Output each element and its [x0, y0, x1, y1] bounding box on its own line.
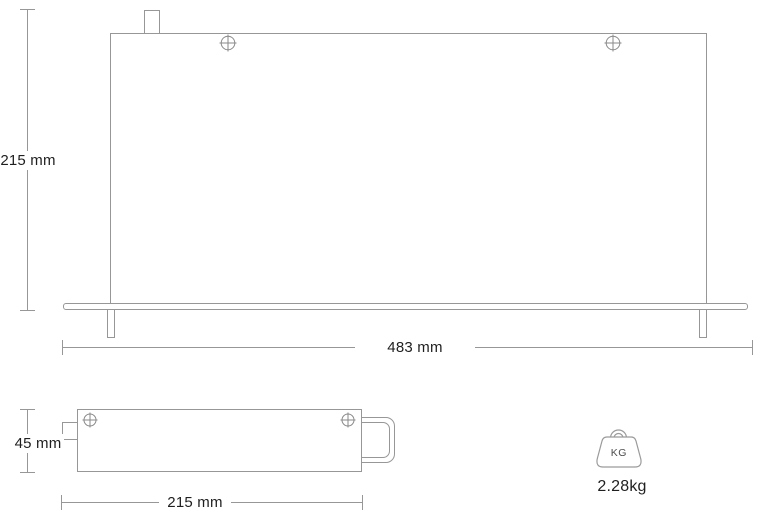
side-width-label: 215 mm [159, 493, 231, 512]
side-chassis-outline [77, 409, 362, 472]
front-chassis-outline [110, 33, 707, 304]
screw-icon [340, 412, 356, 428]
front-height-label: 215 mm [2, 151, 54, 170]
weight-value: 2.28kg [582, 477, 662, 496]
screw-icon [219, 34, 237, 52]
front-top-tab [144, 10, 160, 33]
foot-left [107, 310, 115, 338]
dimension-diagram: 215 mm 483 mm [0, 0, 757, 526]
side-left-tab [62, 422, 78, 440]
side-height-label: 45 mm [12, 434, 64, 453]
screw-icon [604, 34, 622, 52]
front-width-label: 483 mm [355, 338, 475, 357]
mounting-plate [63, 303, 748, 310]
screw-icon [82, 412, 98, 428]
weight-unit-label: KG [611, 447, 627, 459]
foot-right [699, 310, 707, 338]
weight-icon: KG [595, 426, 643, 470]
